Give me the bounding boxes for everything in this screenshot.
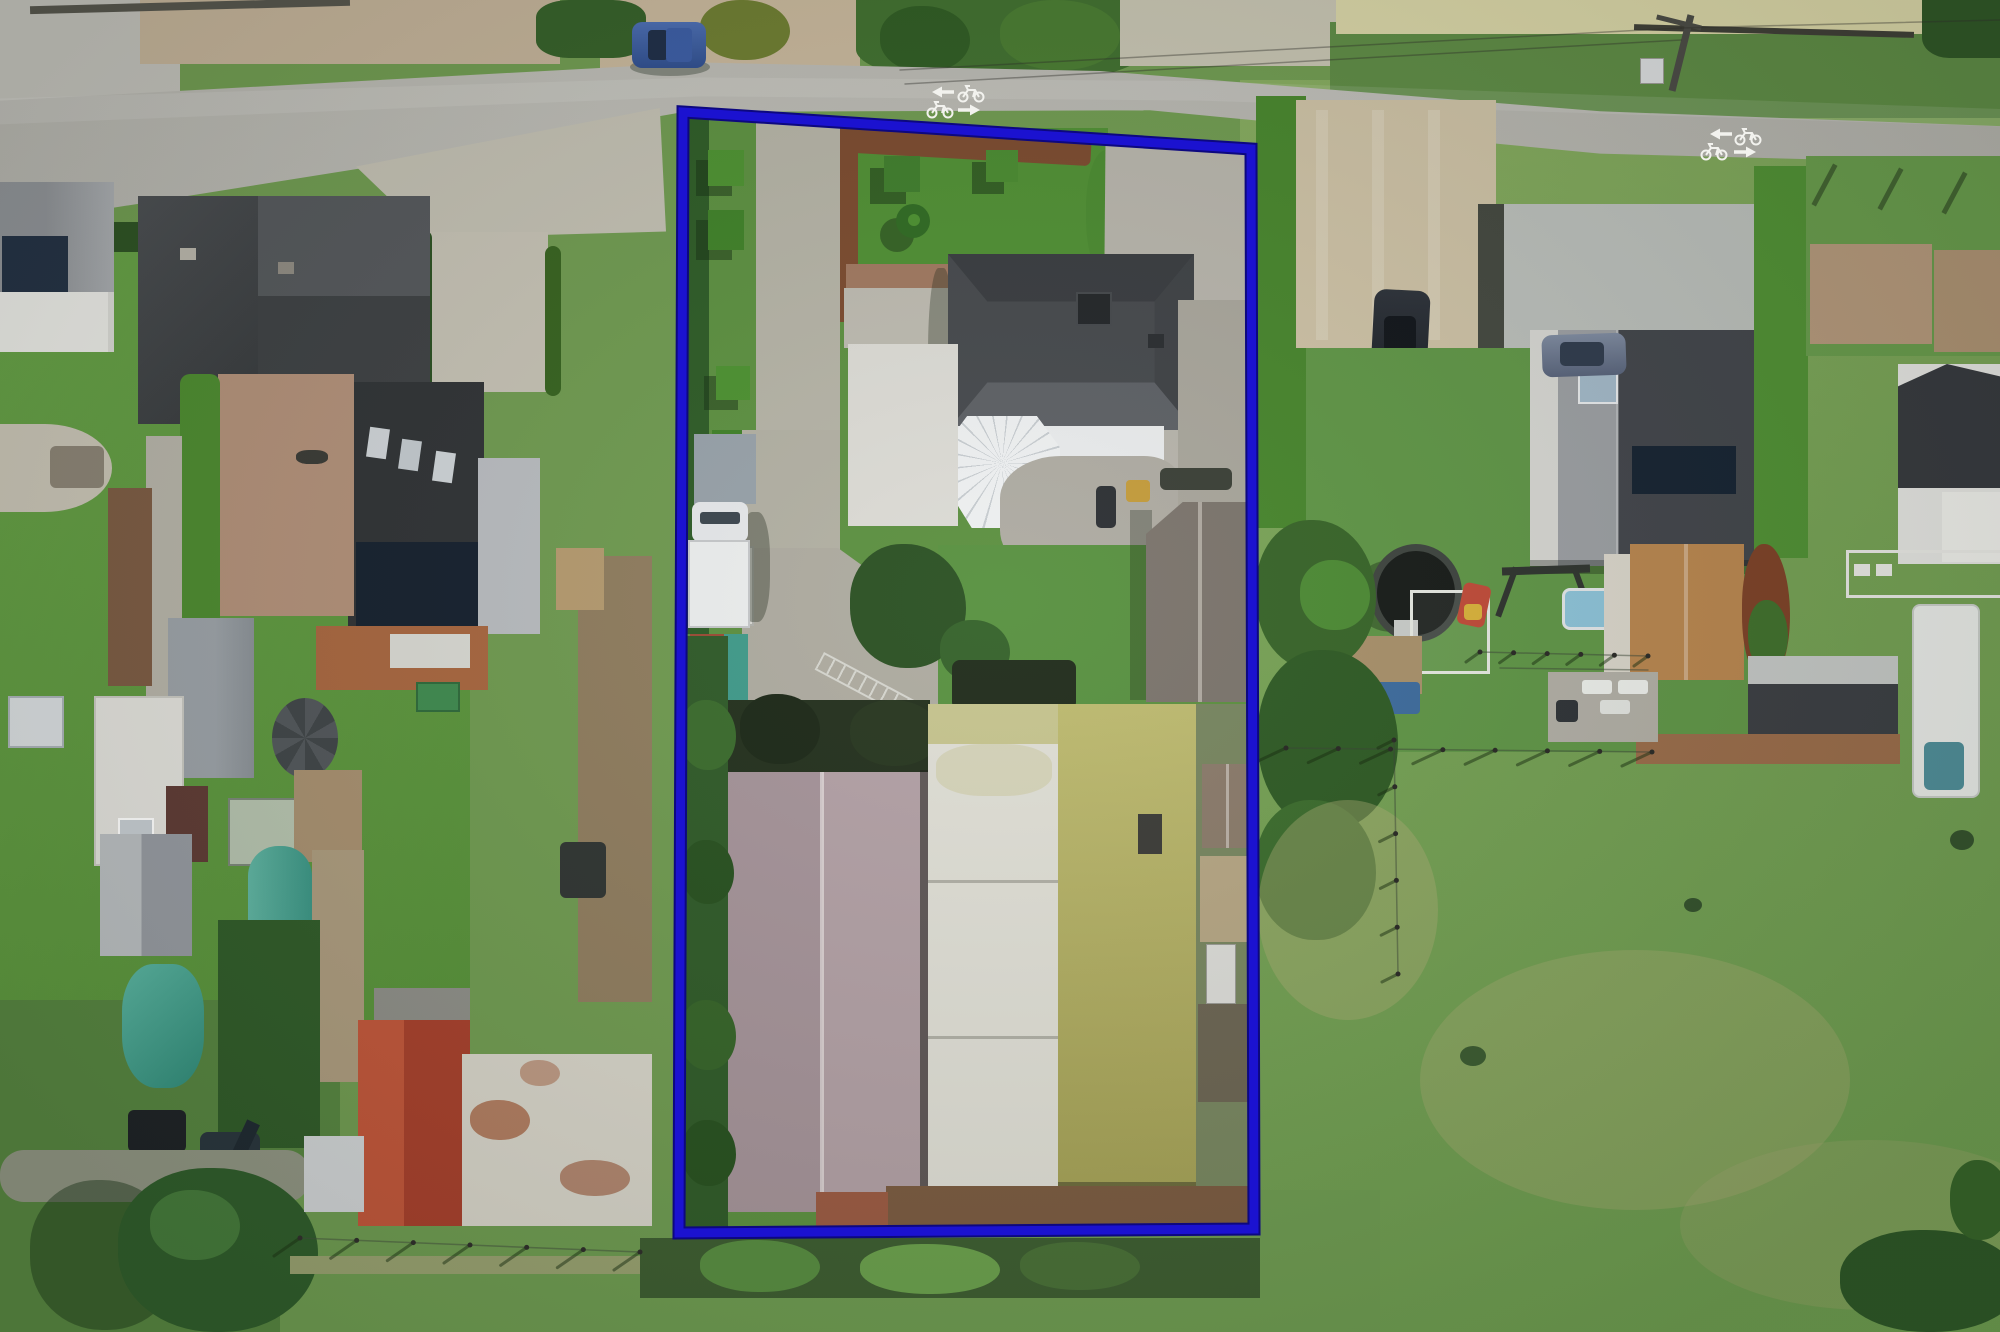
fence-post-shadow bbox=[1380, 834, 1396, 842]
fence-post-shadow bbox=[1600, 655, 1614, 665]
fence-post-shadow bbox=[1622, 752, 1652, 766]
fence-post bbox=[1336, 746, 1341, 751]
fence-post bbox=[1511, 650, 1516, 655]
fence-post-shadow bbox=[1570, 751, 1600, 765]
fence-post-shadow bbox=[444, 1245, 470, 1263]
bike-lane-marking-icon bbox=[1736, 129, 1761, 145]
fence-post bbox=[1545, 651, 1550, 656]
fence-post bbox=[1578, 652, 1583, 657]
fence-rail bbox=[1480, 652, 1648, 656]
fence-post bbox=[1545, 748, 1550, 753]
bike-lane-marking-icon bbox=[928, 102, 953, 118]
power-line bbox=[905, 40, 1681, 84]
fence-post bbox=[1597, 749, 1602, 754]
fence-post-shadow bbox=[1382, 974, 1398, 982]
fence-post bbox=[1393, 831, 1398, 836]
fence-post bbox=[1612, 653, 1617, 658]
fence-post-shadow bbox=[1256, 748, 1286, 762]
fence-post-shadow bbox=[1378, 740, 1394, 748]
fence-post-shadow bbox=[274, 1238, 300, 1256]
bike-lane-marking-icon bbox=[1702, 144, 1727, 160]
fence-post-shadow bbox=[1500, 653, 1514, 663]
fence-post bbox=[1388, 747, 1393, 752]
fence-post bbox=[1650, 750, 1655, 755]
fence-post-shadow bbox=[387, 1243, 413, 1261]
fence-post-shadow bbox=[1533, 654, 1547, 664]
fence-post-shadow bbox=[1567, 654, 1581, 664]
fence-post-shadow bbox=[1381, 927, 1397, 935]
fence-post bbox=[1392, 784, 1397, 789]
fence-post bbox=[581, 1247, 586, 1252]
fence-post-shadow bbox=[1380, 880, 1396, 888]
fence-post bbox=[524, 1245, 529, 1250]
fence-post bbox=[1396, 972, 1401, 977]
road-arrow-marking bbox=[1734, 147, 1756, 158]
fence-post bbox=[1440, 747, 1445, 752]
fence-post bbox=[411, 1240, 416, 1245]
fence-post-shadow bbox=[501, 1247, 527, 1265]
power-line bbox=[900, 28, 1681, 70]
bike-lane-marking-icon bbox=[959, 86, 984, 102]
fence-post bbox=[1394, 878, 1399, 883]
property-boundary-outline bbox=[679, 112, 1254, 1233]
fence-post bbox=[298, 1236, 303, 1241]
fence-rail bbox=[1394, 740, 1398, 974]
fence-post bbox=[1478, 650, 1483, 655]
road-arrow-marking bbox=[958, 105, 980, 116]
road-arrow-marking bbox=[1710, 129, 1732, 140]
fence-post-shadow bbox=[1361, 749, 1391, 763]
fence-post-shadow bbox=[1466, 652, 1480, 662]
fence-post-shadow bbox=[1308, 749, 1338, 763]
power-line bbox=[1681, 20, 2000, 28]
fence-post-shadow bbox=[557, 1250, 583, 1268]
road-arrow-marking bbox=[932, 87, 954, 98]
property-boundary-line bbox=[679, 112, 1254, 1233]
fence-post bbox=[1646, 654, 1651, 659]
aerial-photo bbox=[0, 0, 2000, 1332]
fence-post bbox=[354, 1238, 359, 1243]
fence-post bbox=[1392, 738, 1397, 743]
fence-post-shadow bbox=[1465, 750, 1495, 764]
fence-post-shadow bbox=[331, 1240, 357, 1258]
fence-post-shadow bbox=[1379, 787, 1395, 795]
fence-post-shadow bbox=[614, 1252, 640, 1270]
fence-post bbox=[468, 1243, 473, 1248]
fence-post bbox=[1284, 746, 1289, 751]
fence-post-shadow bbox=[1413, 750, 1443, 764]
fence-post-shadow bbox=[1634, 656, 1648, 666]
fence-post bbox=[1493, 748, 1498, 753]
fence-rail bbox=[1500, 668, 1648, 670]
annotation-overlay bbox=[0, 0, 2000, 1332]
fence-post bbox=[638, 1250, 643, 1255]
fence-post-shadow bbox=[1517, 751, 1547, 765]
fence-post bbox=[1395, 925, 1400, 930]
